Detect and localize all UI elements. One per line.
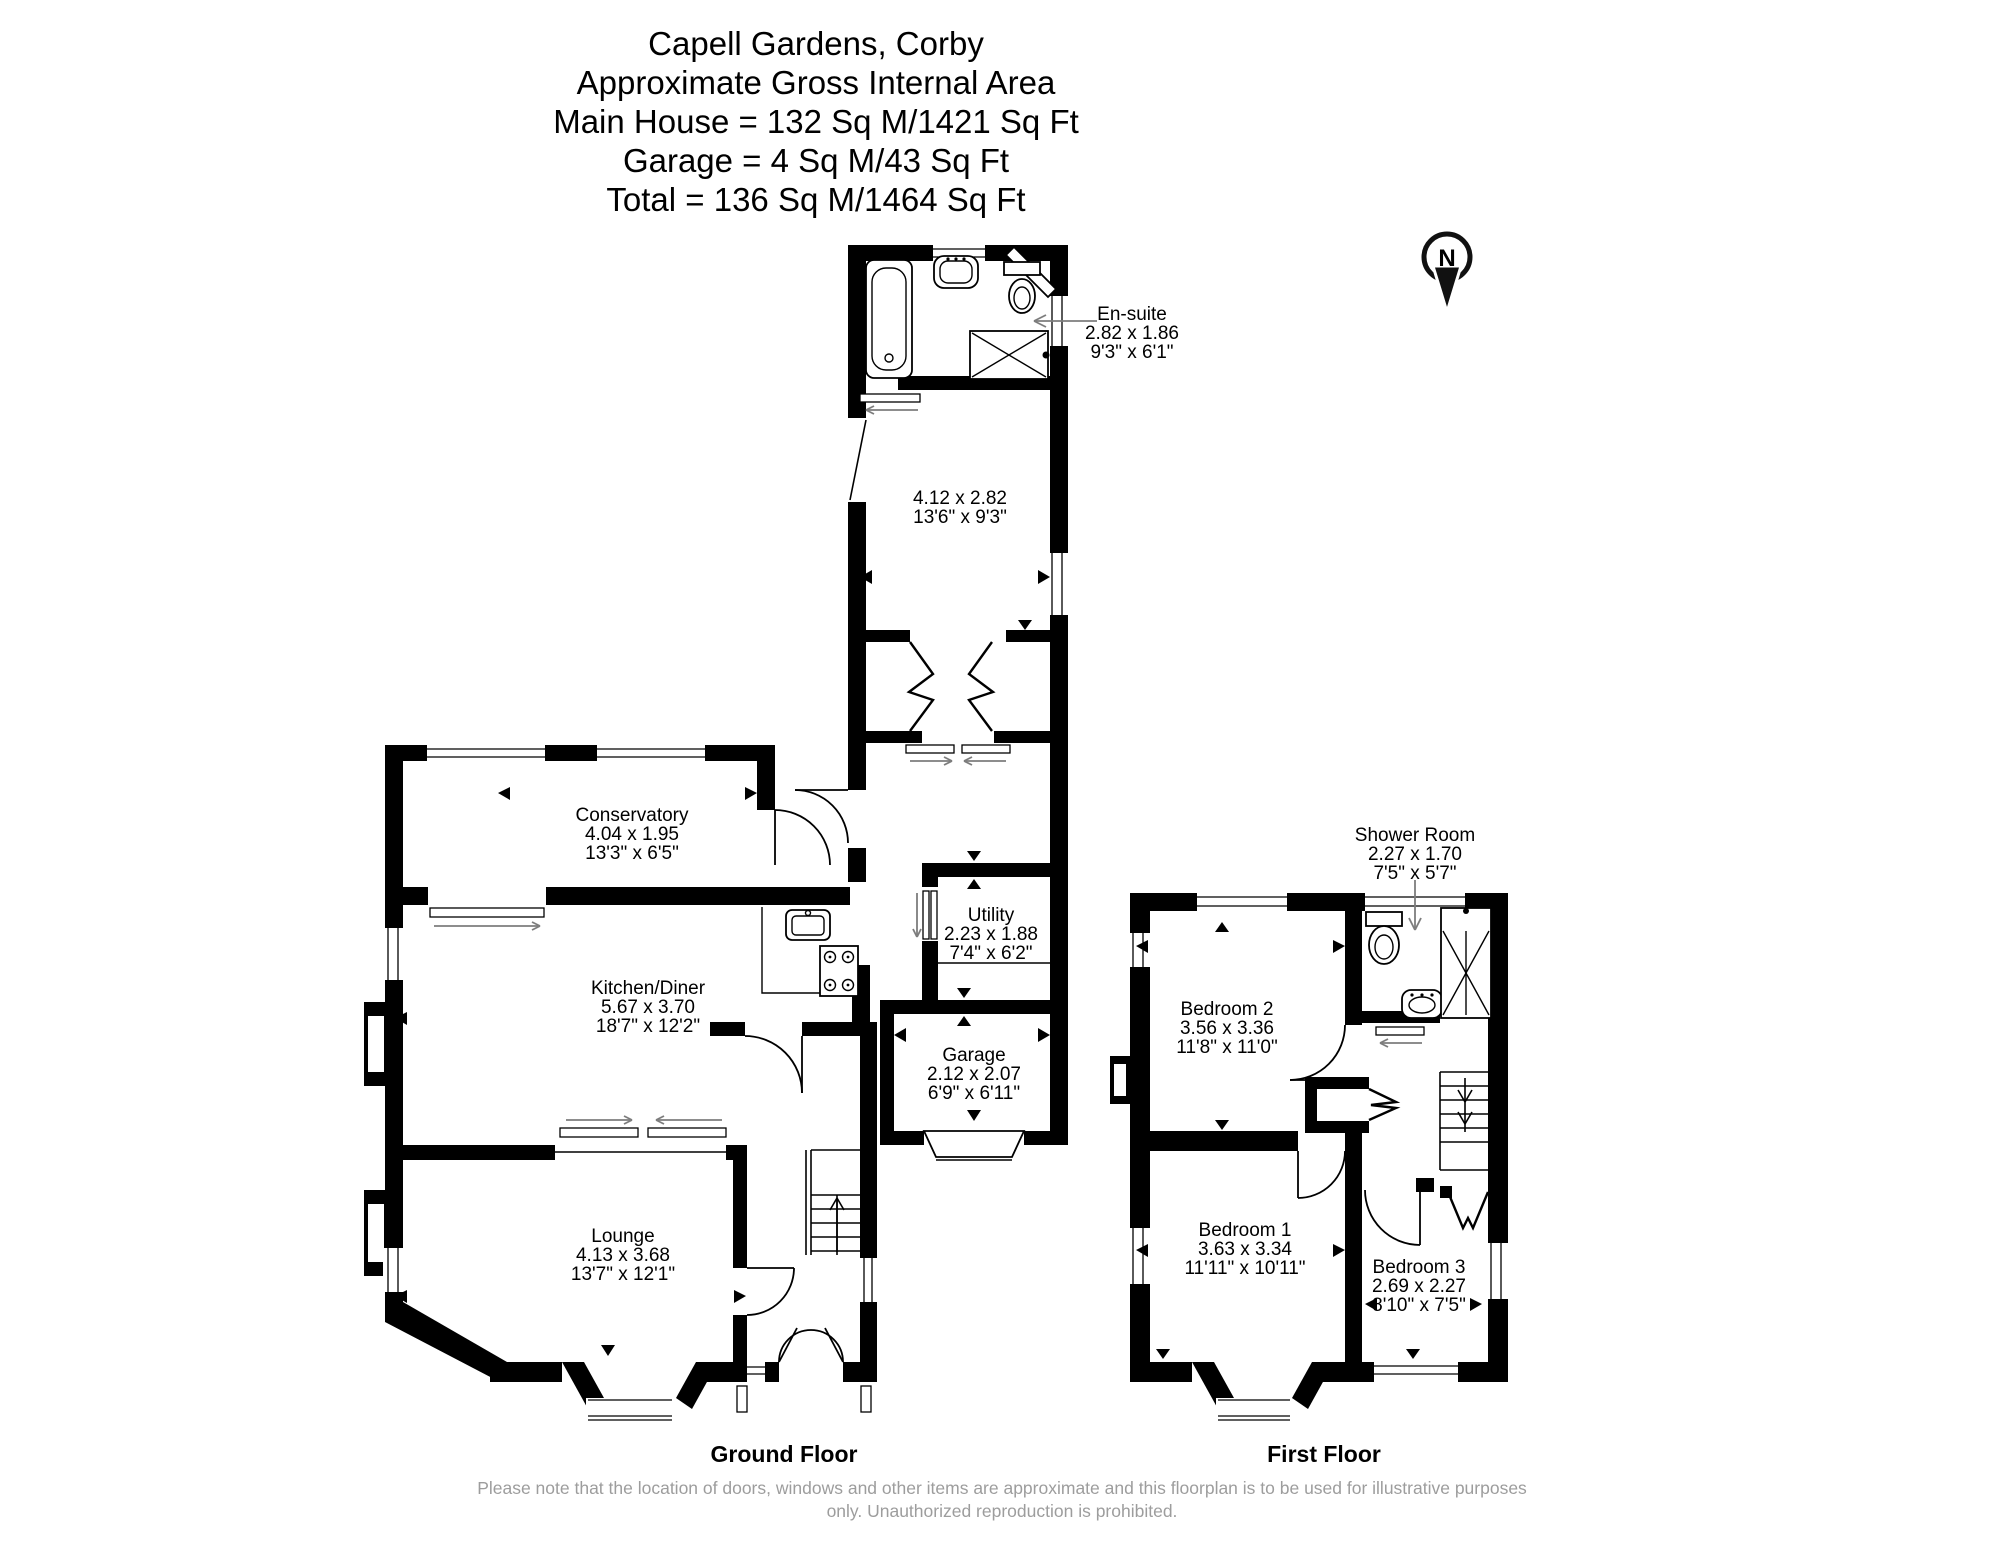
airing-cupboard	[1440, 1186, 1488, 1228]
door	[1290, 1025, 1345, 1080]
chamfer-wall	[385, 1302, 507, 1380]
slide-arrows	[910, 757, 1006, 765]
slide-arrow	[866, 406, 918, 414]
room-label-shower-room: Shower Room 2.27 x 1.70 7'5" x 5'7"	[1355, 826, 1475, 883]
door	[1365, 1190, 1420, 1245]
title-line: Main House = 132 Sq M/1421 Sq Ft	[553, 102, 1079, 141]
room-label-kitchen-diner: Kitchen/Diner 5.67 x 3.70 18'7" x 12'2"	[591, 979, 705, 1036]
room-label-ensuite: En-suite 2.82 x 1.86 9'3" x 6'1"	[1085, 305, 1179, 362]
door	[747, 1268, 794, 1315]
room-label-utility: Utility 2.23 x 1.88 7'4" x 6'2"	[944, 906, 1038, 963]
slide-arrow	[913, 893, 921, 937]
title-line: Approximate Gross Internal Area	[553, 63, 1079, 102]
porch-post	[737, 1386, 747, 1412]
window	[1366, 1362, 1466, 1382]
shower-room-fixtures	[1366, 908, 1491, 1018]
front-door	[779, 1328, 843, 1362]
title-line: Capell Gardens, Corby	[553, 24, 1079, 63]
first-floor-label: First Floor	[1267, 1441, 1381, 1468]
room-label-bedroom3: Bedroom 3 2.69 x 2.27 8'10" x 7'5"	[1372, 1258, 1466, 1315]
svg-text:N: N	[1438, 245, 1455, 272]
porch-post	[861, 1386, 871, 1412]
disclaimer-text: Please note that the location of doors, …	[472, 1477, 1532, 1523]
window	[860, 1258, 877, 1302]
door	[745, 1036, 802, 1093]
toilet-icon	[1366, 912, 1402, 926]
dimension-markers	[395, 570, 1482, 1359]
window	[383, 1248, 405, 1292]
room-label-lounge: Lounge 4.13 x 3.68 13'7" x 12'1"	[571, 1227, 675, 1284]
stairs-up-arrow	[830, 1198, 844, 1252]
door	[1298, 1151, 1345, 1198]
stairs-up	[806, 1150, 860, 1255]
room-label-garage: Garage 2.12 x 2.07 6'9" x 6'11"	[927, 1046, 1021, 1103]
window	[747, 1362, 765, 1380]
slide-arrow	[1380, 1039, 1422, 1047]
garage-door	[924, 1131, 1024, 1157]
door	[775, 810, 830, 865]
closet	[1305, 1077, 1396, 1133]
stairs-down	[1440, 1072, 1490, 1170]
room-label-bedroom1: Bedroom 1 3.63 x 3.34 11'11" x 10'11"	[1184, 1221, 1305, 1278]
room-label-conservatory: Conservatory 4.04 x 1.95 13'3" x 6'5"	[576, 806, 689, 863]
window	[383, 928, 405, 980]
ensuite-fixtures	[866, 247, 1056, 379]
page-title: Capell Gardens, Corby Approximate Gross …	[553, 24, 1079, 219]
floorplan-svg: N	[0, 0, 1999, 1545]
kitchen-fixtures	[762, 907, 858, 996]
title-line: Total = 136 Sq M/1464 Sq Ft	[553, 180, 1079, 219]
slide-arrows	[566, 1116, 722, 1124]
north-arrow-icon: N	[1424, 234, 1470, 312]
room-label-rear-bedroom: 4.12 x 2.82 13'6" x 9'3"	[913, 489, 1007, 527]
toilet-icon	[1004, 262, 1040, 275]
bay-window	[562, 1362, 718, 1422]
floorplan-page: N Capell Gardens, Corby Approximate Gros…	[0, 0, 1999, 1545]
title-line: Garage = 4 Sq M/43 Sq Ft	[553, 141, 1079, 180]
ground-floor-label: Ground Floor	[711, 1441, 858, 1468]
room-label-bedroom2: Bedroom 2 3.56 x 3.36 11'8" x 11'0"	[1176, 1000, 1277, 1057]
slide-arrow	[434, 922, 540, 930]
